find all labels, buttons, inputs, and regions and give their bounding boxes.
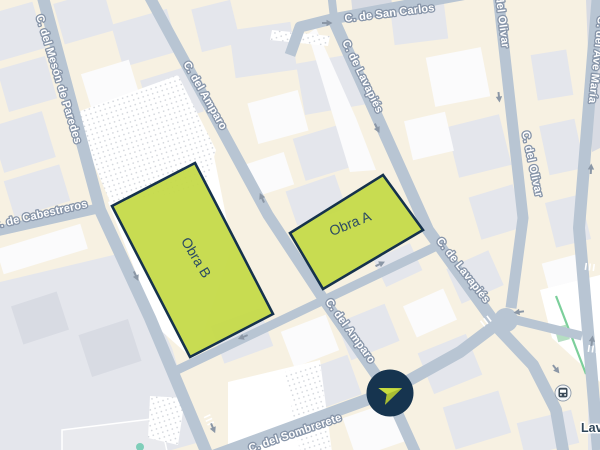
navigation-marker[interactable] <box>367 370 414 417</box>
map-canvas[interactable]: Obra B Obra A C. del Mesón de Paredes C.… <box>0 0 600 450</box>
transit-station-icon[interactable] <box>555 385 571 401</box>
map-svg: Obra B Obra A C. del Mesón de Paredes C.… <box>0 0 600 450</box>
station-label: Lavapiés <box>581 421 600 435</box>
